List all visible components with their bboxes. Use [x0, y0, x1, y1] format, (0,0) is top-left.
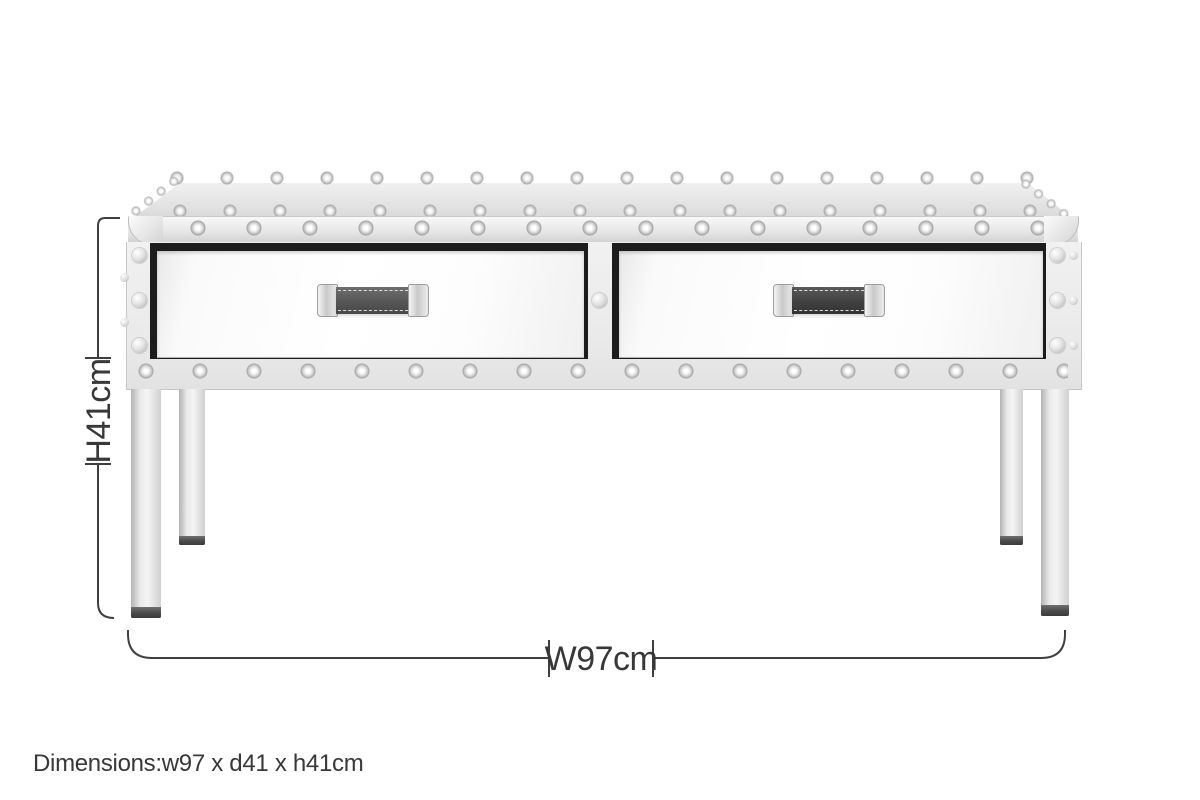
dimensions-caption: Dimensions:w97 x d41 x h41cm [33, 750, 363, 778]
height-label: H41cm [79, 336, 119, 486]
product-dimension-diagram: H41cm W97cm Dimensions:w97 x d41 x h41cm [0, 0, 1200, 800]
dimension-lines [0, 0, 1200, 800]
width-label: W97cm [521, 641, 681, 677]
